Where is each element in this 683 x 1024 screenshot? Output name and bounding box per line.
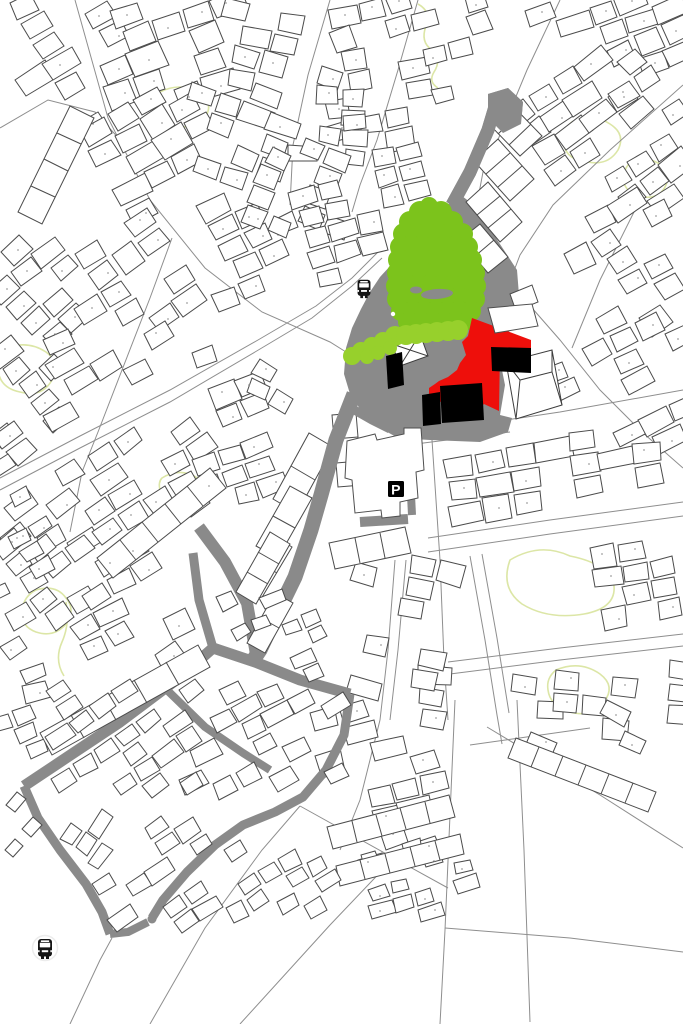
svg-text:P: P bbox=[391, 481, 400, 497]
